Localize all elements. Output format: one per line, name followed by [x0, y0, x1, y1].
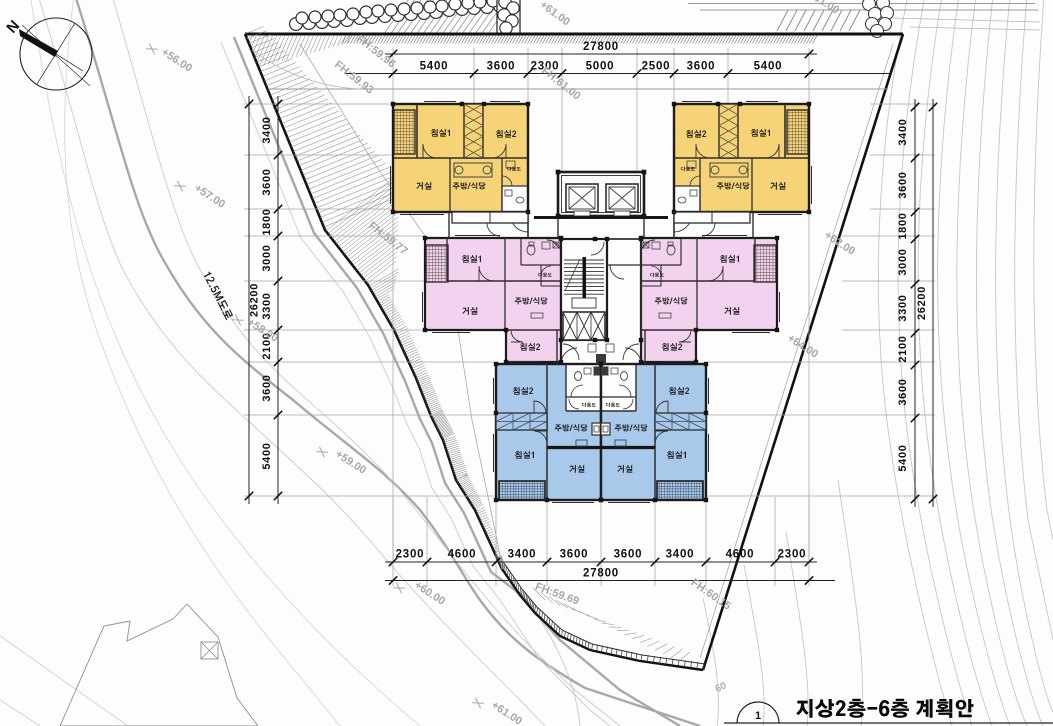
svg-text:3600: 3600	[560, 549, 589, 561]
svg-text:26200: 26200	[249, 283, 261, 317]
svg-text:1800: 1800	[897, 212, 909, 239]
svg-text:5400: 5400	[897, 444, 909, 471]
svg-text:3300: 3300	[897, 294, 909, 321]
svg-text:5400: 5400	[420, 61, 449, 73]
svg-text:3600: 3600	[897, 171, 909, 198]
svg-text:2500: 2500	[642, 61, 671, 73]
svg-text:3300: 3300	[261, 292, 273, 319]
svg-text:3600: 3600	[261, 168, 273, 195]
svg-text:1: 1	[755, 710, 761, 722]
svg-text:5400: 5400	[754, 61, 783, 73]
svg-text:3600: 3600	[614, 549, 643, 561]
svg-text:3000: 3000	[897, 248, 909, 275]
svg-text:3600: 3600	[261, 374, 273, 401]
svg-text:4600: 4600	[448, 549, 477, 561]
svg-text:5000: 5000	[586, 61, 615, 73]
svg-text:2100: 2100	[897, 335, 909, 362]
svg-text:1800: 1800	[261, 208, 273, 235]
svg-text:2300: 2300	[778, 549, 807, 561]
svg-text:3400: 3400	[666, 549, 695, 561]
svg-text:3400: 3400	[897, 118, 909, 145]
svg-text:27800: 27800	[583, 568, 619, 580]
svg-text:4600: 4600	[726, 549, 755, 561]
svg-text:3400: 3400	[508, 549, 537, 561]
svg-text:2300: 2300	[396, 549, 425, 561]
svg-text:3400: 3400	[261, 116, 273, 143]
svg-text:27800: 27800	[583, 41, 619, 53]
svg-text:5400: 5400	[261, 442, 273, 469]
svg-text:26200: 26200	[916, 286, 928, 320]
svg-text:3000: 3000	[261, 244, 273, 271]
svg-text:3600: 3600	[897, 378, 909, 405]
svg-text:3600: 3600	[487, 61, 516, 73]
svg-text:3600: 3600	[687, 61, 716, 73]
